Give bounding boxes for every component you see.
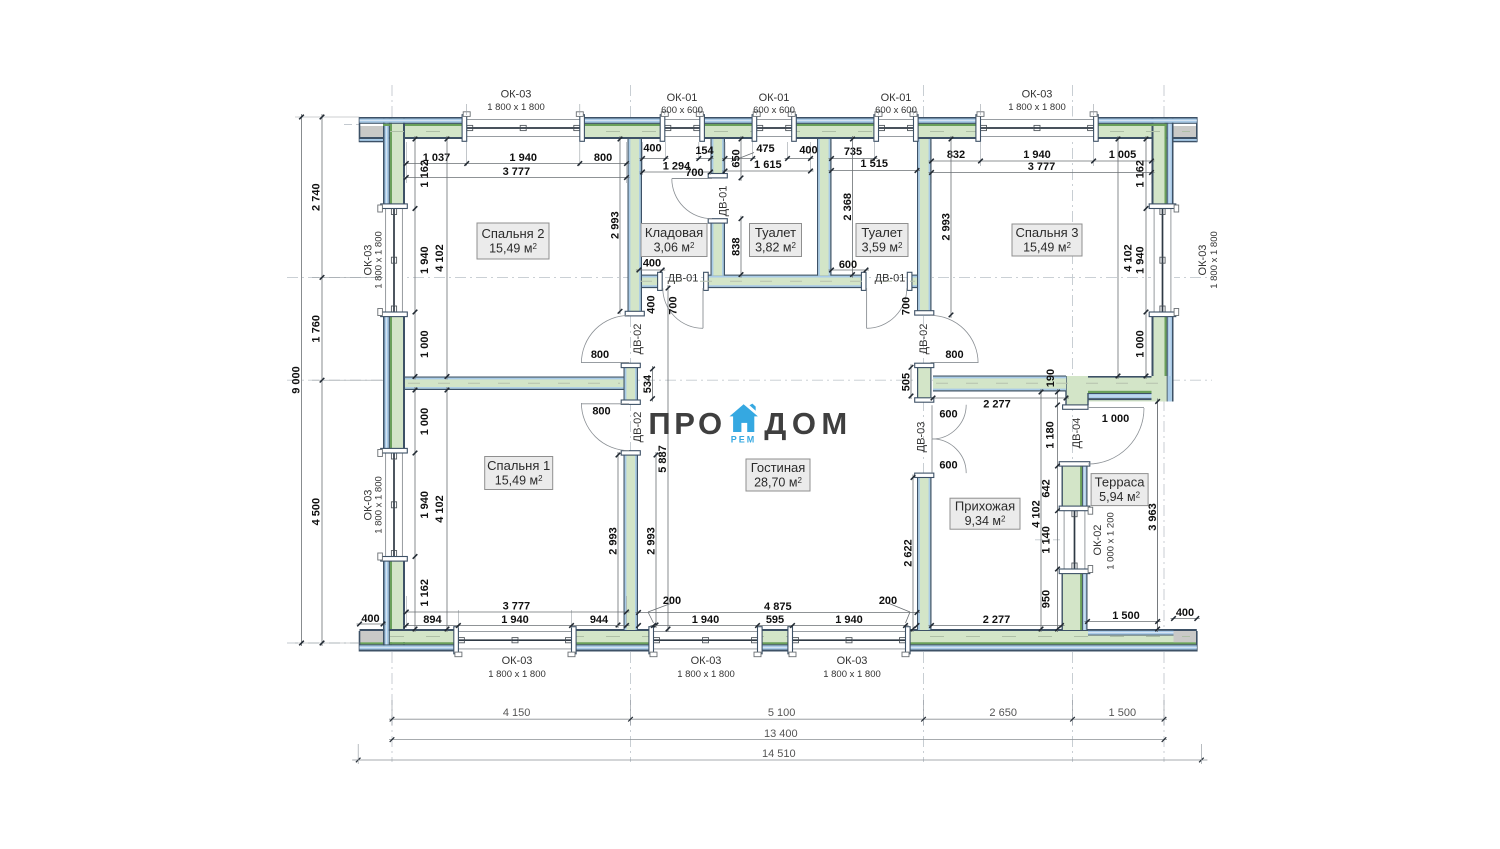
svg-text:1 162: 1 162 (1135, 160, 1147, 188)
svg-text:5 887: 5 887 (657, 445, 669, 473)
svg-text:4 102: 4 102 (1031, 500, 1043, 528)
svg-text:1 800 x 1 800: 1 800 x 1 800 (677, 669, 735, 680)
svg-text:4 102: 4 102 (434, 244, 446, 272)
svg-text:2 277: 2 277 (983, 399, 1011, 411)
svg-text:Туалет: Туалет (755, 225, 796, 240)
svg-text:ОК-01: ОК-01 (667, 92, 698, 104)
svg-text:1 005: 1 005 (1109, 149, 1137, 161)
svg-text:2 650: 2 650 (989, 707, 1017, 719)
svg-text:Спальня 1: Спальня 1 (487, 458, 550, 473)
svg-text:700: 700 (901, 297, 913, 315)
svg-text:28,70 м2: 28,70 м2 (754, 476, 802, 490)
svg-text:200: 200 (879, 595, 897, 607)
svg-text:1 800 x 1 800: 1 800 x 1 800 (487, 102, 545, 113)
svg-text:ПРО: ПРО (648, 406, 725, 441)
svg-text:1 000: 1 000 (419, 330, 431, 358)
svg-text:1 800 x 1 800: 1 800 x 1 800 (1008, 102, 1066, 113)
svg-text:ОК-03: ОК-03 (501, 89, 532, 101)
svg-text:Спальня 2: Спальня 2 (481, 226, 544, 241)
svg-text:2 740: 2 740 (311, 183, 323, 211)
svg-text:1 800 x 1 800: 1 800 x 1 800 (374, 231, 385, 289)
svg-text:832: 832 (947, 149, 965, 161)
svg-text:ДВ-04: ДВ-04 (1071, 418, 1083, 449)
svg-text:5,94 м2: 5,94 м2 (1099, 490, 1140, 504)
svg-text:950: 950 (1041, 590, 1053, 608)
svg-text:400: 400 (643, 143, 661, 155)
svg-text:ОК-03: ОК-03 (502, 655, 533, 667)
svg-text:4 102: 4 102 (434, 495, 446, 523)
svg-text:1 615: 1 615 (754, 159, 782, 171)
svg-text:2 622: 2 622 (902, 539, 914, 567)
svg-text:3,82 м2: 3,82 м2 (755, 241, 796, 255)
svg-text:ДВ-02: ДВ-02 (918, 324, 930, 355)
svg-text:1 940: 1 940 (419, 246, 431, 274)
svg-text:15,49 м2: 15,49 м2 (495, 474, 543, 488)
svg-text:800: 800 (591, 349, 609, 361)
svg-text:2 993: 2 993 (646, 527, 658, 555)
svg-text:ОК-01: ОК-01 (759, 92, 790, 104)
svg-text:ДВ-02: ДВ-02 (632, 412, 644, 443)
svg-text:1 000: 1 000 (1102, 413, 1130, 425)
svg-text:190: 190 (1045, 369, 1057, 387)
svg-text:595: 595 (766, 614, 784, 626)
svg-text:15,49 м2: 15,49 м2 (1023, 241, 1071, 255)
svg-text:Спальня 3: Спальня 3 (1015, 225, 1078, 240)
svg-text:2 368: 2 368 (842, 193, 854, 221)
svg-text:400: 400 (799, 145, 817, 157)
svg-text:5 100: 5 100 (768, 707, 796, 719)
svg-text:600: 600 (939, 409, 957, 421)
svg-text:600 x 600: 600 x 600 (875, 105, 917, 116)
svg-text:ДВ-02: ДВ-02 (632, 324, 644, 355)
svg-text:3 963: 3 963 (1147, 503, 1159, 531)
svg-text:1 940: 1 940 (1023, 149, 1051, 161)
svg-text:ОК-03: ОК-03 (1022, 89, 1053, 101)
svg-text:600: 600 (939, 460, 957, 472)
svg-text:800: 800 (594, 152, 612, 164)
svg-text:475: 475 (756, 143, 774, 155)
svg-text:1 940: 1 940 (692, 614, 720, 626)
svg-text:642: 642 (1041, 479, 1053, 497)
svg-text:1 000 x 1 200: 1 000 x 1 200 (1106, 512, 1117, 570)
svg-text:1 500: 1 500 (1109, 707, 1137, 719)
svg-text:13 400: 13 400 (764, 728, 798, 740)
svg-text:ДВ-01: ДВ-01 (668, 273, 699, 285)
svg-text:1 000: 1 000 (419, 408, 431, 436)
svg-text:1 940: 1 940 (509, 152, 537, 164)
svg-text:4 102: 4 102 (1123, 244, 1135, 272)
svg-text:1 800 x 1 800: 1 800 x 1 800 (1209, 231, 1220, 289)
svg-text:ОК-02: ОК-02 (1092, 525, 1104, 556)
svg-text:3,06 м2: 3,06 м2 (654, 241, 695, 255)
svg-text:1 515: 1 515 (860, 158, 888, 170)
svg-text:Туалет: Туалет (861, 225, 902, 240)
svg-text:1 760: 1 760 (311, 315, 323, 343)
svg-text:4 500: 4 500 (311, 498, 323, 526)
svg-text:14 510: 14 510 (762, 748, 796, 760)
svg-text:1 800 x 1 800: 1 800 x 1 800 (488, 669, 546, 680)
svg-text:3,59 м2: 3,59 м2 (862, 241, 903, 255)
svg-text:1 162: 1 162 (419, 160, 431, 188)
svg-text:ОК-03: ОК-03 (691, 655, 722, 667)
svg-text:ДВ-01: ДВ-01 (718, 186, 730, 217)
svg-text:800: 800 (592, 406, 610, 418)
svg-text:2 993: 2 993 (941, 213, 953, 241)
svg-text:400: 400 (361, 613, 379, 625)
svg-text:1 940: 1 940 (501, 614, 529, 626)
svg-text:Терраса: Терраса (1095, 474, 1146, 489)
svg-text:4 150: 4 150 (503, 707, 531, 719)
svg-text:534: 534 (642, 374, 654, 393)
svg-text:ДВ-03: ДВ-03 (916, 422, 928, 453)
svg-text:9 000: 9 000 (291, 366, 303, 394)
svg-text:505: 505 (900, 373, 912, 391)
svg-text:3 777: 3 777 (503, 601, 531, 613)
svg-text:200: 200 (663, 595, 681, 607)
svg-text:400: 400 (643, 258, 661, 270)
svg-text:3 777: 3 777 (503, 166, 531, 178)
svg-text:1 180: 1 180 (1045, 421, 1057, 449)
svg-text:1 800 x 1 800: 1 800 x 1 800 (374, 476, 385, 534)
svg-text:894: 894 (423, 614, 442, 626)
svg-text:3 777: 3 777 (1028, 161, 1056, 173)
svg-text:ДВ-01: ДВ-01 (875, 273, 906, 285)
svg-text:600: 600 (839, 259, 857, 271)
svg-text:838: 838 (731, 238, 743, 256)
svg-text:ДОМ: ДОМ (764, 406, 853, 441)
svg-text:700: 700 (668, 296, 680, 314)
svg-text:2 993: 2 993 (608, 527, 620, 555)
svg-text:ОК-03: ОК-03 (1197, 245, 1209, 276)
svg-text:735: 735 (844, 146, 862, 158)
svg-text:700: 700 (685, 167, 703, 179)
svg-text:ОК-01: ОК-01 (881, 92, 912, 104)
svg-text:1 800 x 1 800: 1 800 x 1 800 (823, 669, 881, 680)
svg-text:Кладовая: Кладовая (645, 225, 703, 240)
svg-text:1 940: 1 940 (419, 491, 431, 519)
svg-text:2 277: 2 277 (983, 614, 1011, 626)
svg-text:600 x 600: 600 x 600 (661, 105, 703, 116)
svg-text:15,49 м2: 15,49 м2 (489, 242, 537, 256)
svg-text:1 940: 1 940 (835, 614, 863, 626)
svg-text:944: 944 (590, 614, 609, 626)
svg-text:1 000: 1 000 (1135, 330, 1147, 358)
svg-text:Прихожая: Прихожая (955, 499, 1015, 514)
svg-text:1 140: 1 140 (1041, 526, 1053, 554)
svg-text:9,34 м2: 9,34 м2 (965, 514, 1006, 528)
svg-text:800: 800 (945, 349, 963, 361)
svg-text:600 x 600: 600 x 600 (753, 105, 795, 116)
svg-text:4 875: 4 875 (764, 601, 792, 613)
svg-text:2 993: 2 993 (610, 211, 622, 239)
svg-text:1 940: 1 940 (1135, 246, 1147, 274)
svg-text:154: 154 (695, 145, 714, 157)
svg-text:Гостиная: Гостиная (751, 460, 806, 475)
svg-text:ОК-03: ОК-03 (837, 655, 868, 667)
svg-text:400: 400 (1176, 607, 1194, 619)
svg-text:РЕМ: РЕМ (731, 435, 757, 445)
svg-text:1 500: 1 500 (1112, 610, 1140, 622)
svg-text:400: 400 (646, 295, 658, 313)
svg-text:1 162: 1 162 (419, 579, 431, 607)
svg-text:650: 650 (731, 149, 743, 167)
